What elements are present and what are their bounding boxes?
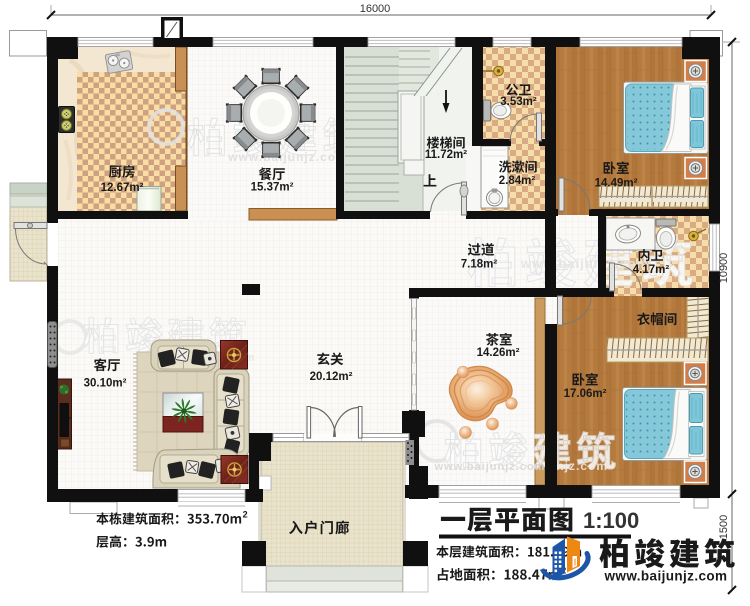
svg-text:11.72m²: 11.72m² (425, 149, 467, 161)
svg-text:30.10m²: 30.10m² (84, 378, 127, 390)
svg-text:10900: 10900 (718, 253, 730, 284)
svg-text:www.baijunjz.com: www.baijunjz.com (604, 569, 728, 584)
svg-text:1500: 1500 (718, 515, 730, 539)
svg-text:16000: 16000 (360, 3, 391, 15)
svg-text:www.baijunjz.com: www.baijunjz.com (434, 461, 546, 473)
svg-text:2: 2 (243, 510, 248, 520)
svg-text:15.37m²: 15.37m² (251, 182, 294, 194)
svg-text:www.baijunjz.com: www.baijunjz.com (227, 150, 348, 164)
svg-text:20.12m²: 20.12m² (310, 371, 353, 383)
svg-text:14.26m²: 14.26m² (477, 347, 520, 359)
svg-text:2.84m²: 2.84m² (499, 175, 536, 187)
svg-text:14.49m²: 14.49m² (595, 178, 638, 190)
svg-text:12.67m²: 12.67m² (101, 182, 144, 194)
svg-text:7.18m²: 7.18m² (461, 259, 498, 271)
svg-text:1:100: 1:100 (583, 508, 639, 533)
svg-text:3.53m²: 3.53m² (500, 96, 537, 108)
svg-text:17.06m²: 17.06m² (564, 388, 607, 400)
svg-text:4.17m²: 4.17m² (633, 264, 670, 276)
